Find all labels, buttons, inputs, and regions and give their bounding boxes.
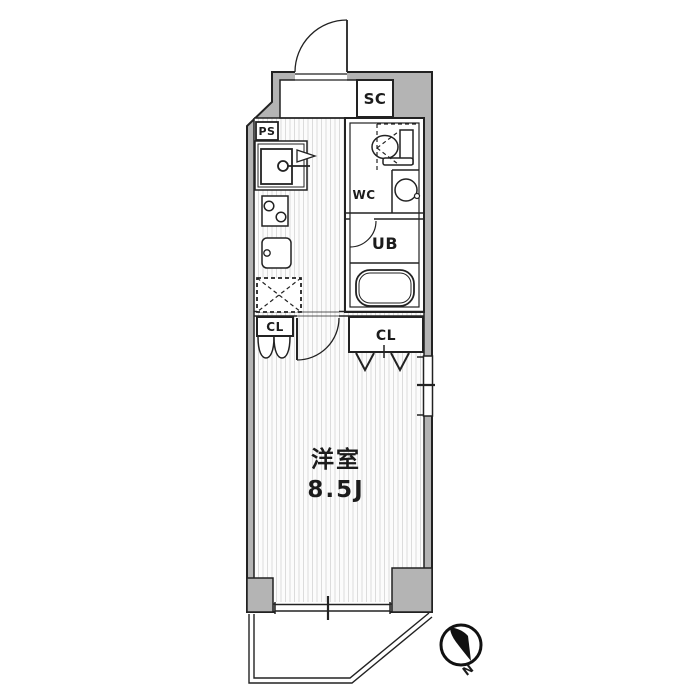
washing-machine-space [257, 278, 301, 312]
wc-label: WC [352, 188, 375, 202]
burner-icon [276, 212, 286, 222]
room-size-label: 8.5J [307, 477, 364, 503]
floor-plan-drawing: SC PS [0, 0, 700, 700]
burner-icon [264, 201, 274, 211]
entry-hall [280, 80, 357, 118]
wash-basin-icon [395, 179, 417, 201]
pipe-space-label: PS [259, 125, 276, 138]
closet-right-label: CL [376, 328, 396, 344]
bottom-left-wall-notch [247, 578, 273, 612]
entrance-door-arc [295, 20, 347, 72]
balcony [249, 613, 432, 683]
ub-label: UB [372, 234, 398, 253]
compass: N [441, 625, 481, 679]
faucet-icon [278, 161, 288, 171]
bottom-right-wall-notch [392, 568, 432, 612]
counter-unit [262, 238, 291, 268]
closet-left-label: CL [266, 320, 283, 334]
shoe-closet-label: SC [364, 90, 387, 108]
room-name-label: 洋室 [311, 446, 361, 473]
entrance-door [295, 20, 347, 84]
floor-plan-page: SC PS [0, 0, 700, 700]
kitchen-sink [255, 141, 315, 190]
stove [262, 196, 288, 226]
